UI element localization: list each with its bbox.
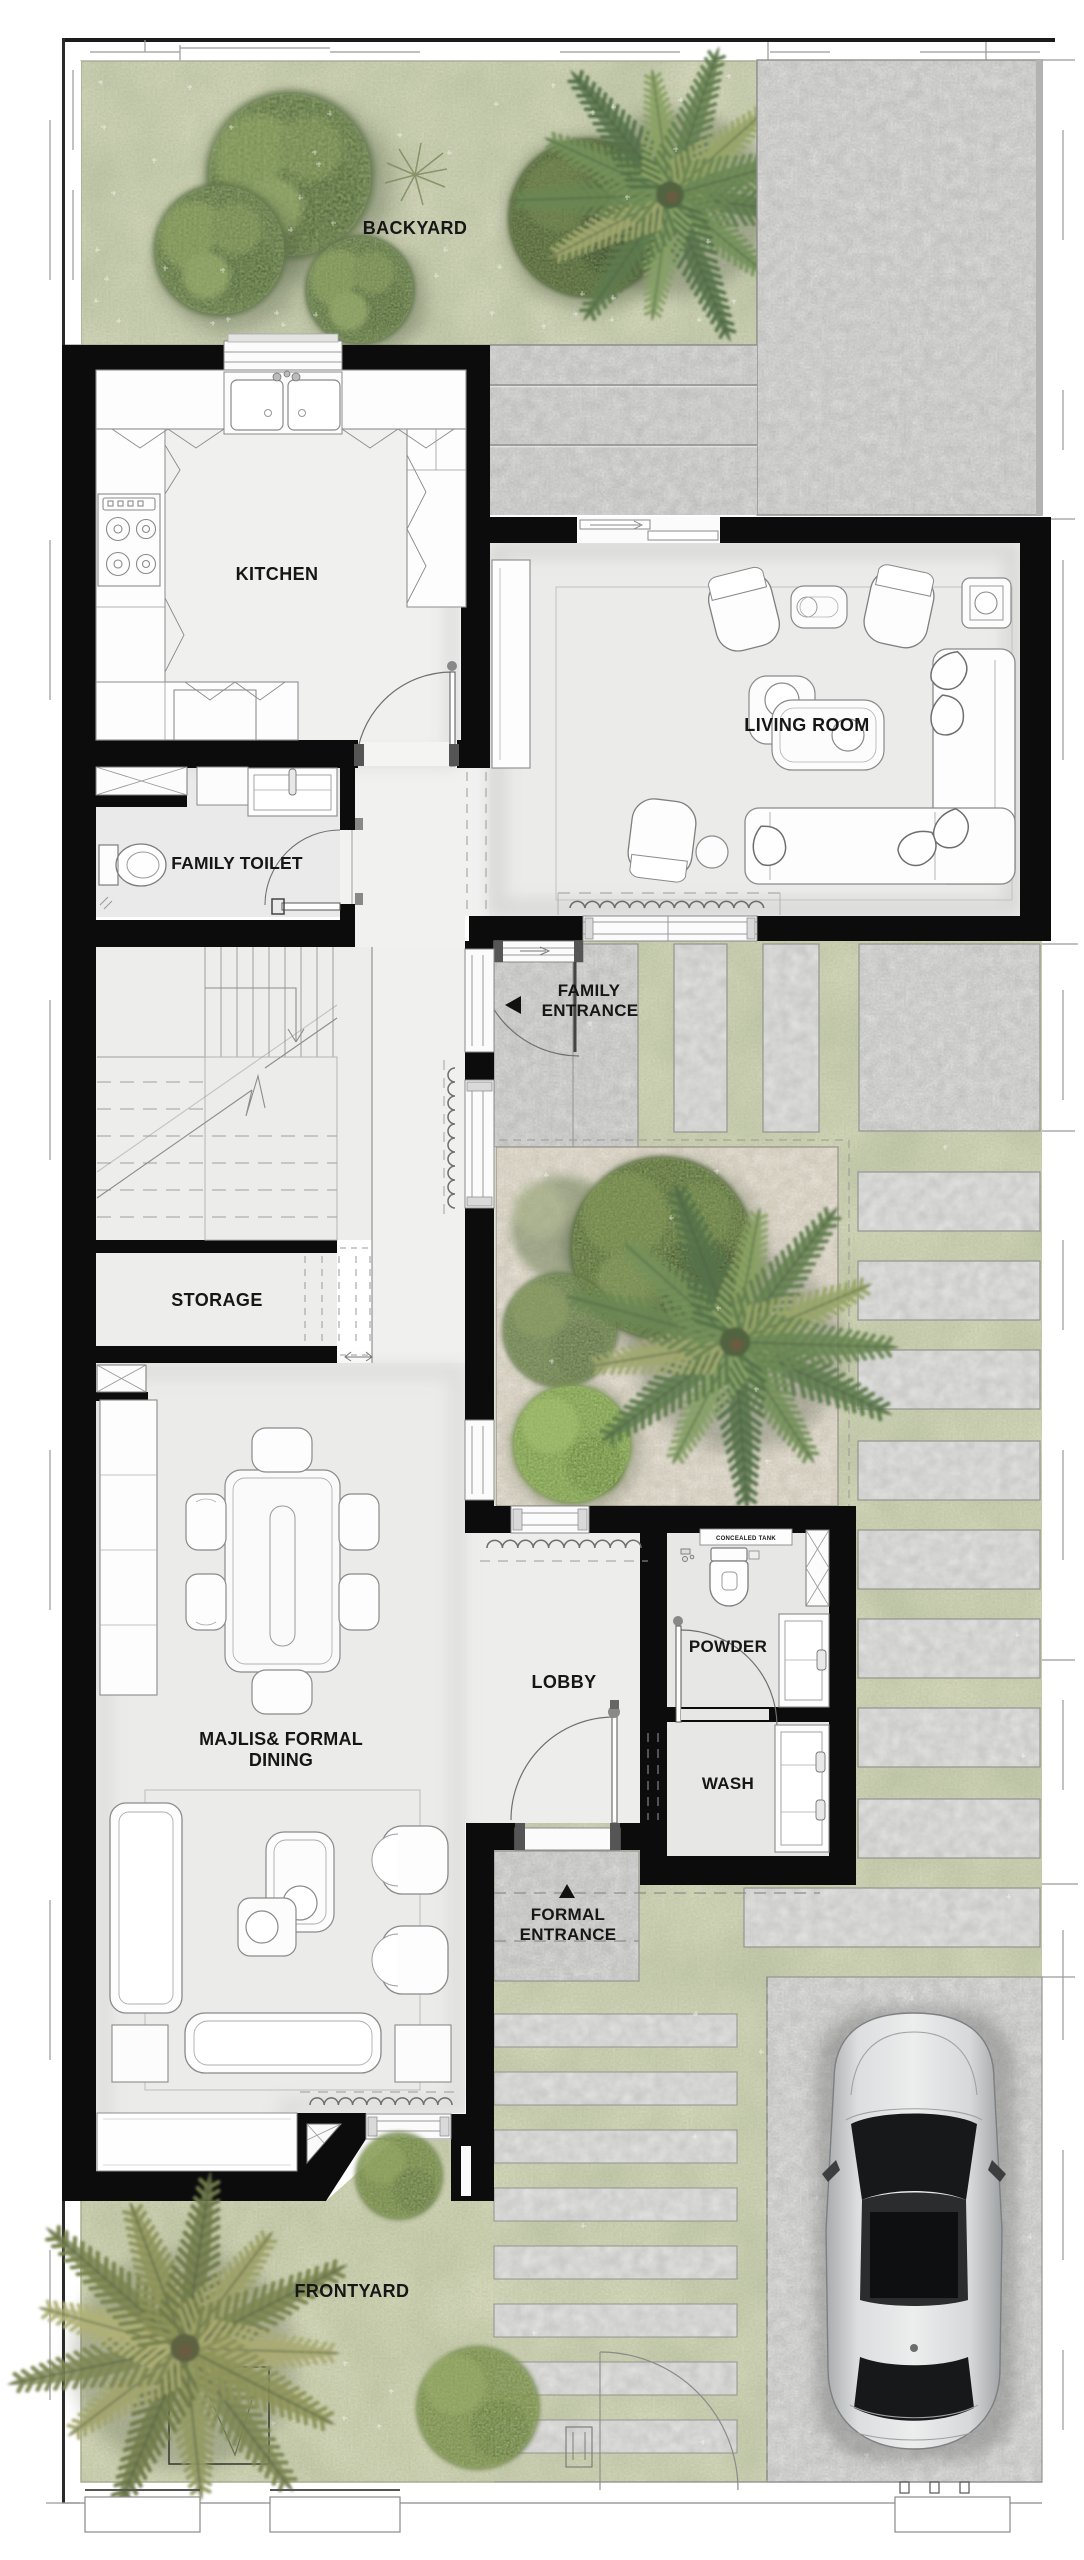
svg-text:FRONTYARD: FRONTYARD <box>295 2281 410 2301</box>
svg-text:STORAGE: STORAGE <box>171 1290 262 1310</box>
svg-text:BACKYARD: BACKYARD <box>363 218 468 238</box>
svg-text:LIVING ROOM: LIVING ROOM <box>744 715 869 735</box>
svg-text:LOBBY: LOBBY <box>532 1672 597 1692</box>
svg-text:FAMILY TOILET: FAMILY TOILET <box>171 853 303 873</box>
svg-text:CONCEALED TANK: CONCEALED TANK <box>716 1536 776 1542</box>
svg-text:WASH: WASH <box>702 1774 754 1793</box>
svg-text:KITCHEN: KITCHEN <box>236 564 319 584</box>
svg-text:FAMILY: FAMILY <box>558 981 621 1000</box>
svg-text:DINING: DINING <box>249 1750 313 1770</box>
svg-text:FORMAL: FORMAL <box>531 1905 606 1924</box>
svg-text:ENTRANCE: ENTRANCE <box>542 1001 639 1020</box>
svg-text:ENTRANCE: ENTRANCE <box>520 1925 617 1944</box>
svg-text:POWDER: POWDER <box>689 1637 767 1656</box>
svg-text:MAJLIS& FORMAL: MAJLIS& FORMAL <box>199 1729 363 1749</box>
